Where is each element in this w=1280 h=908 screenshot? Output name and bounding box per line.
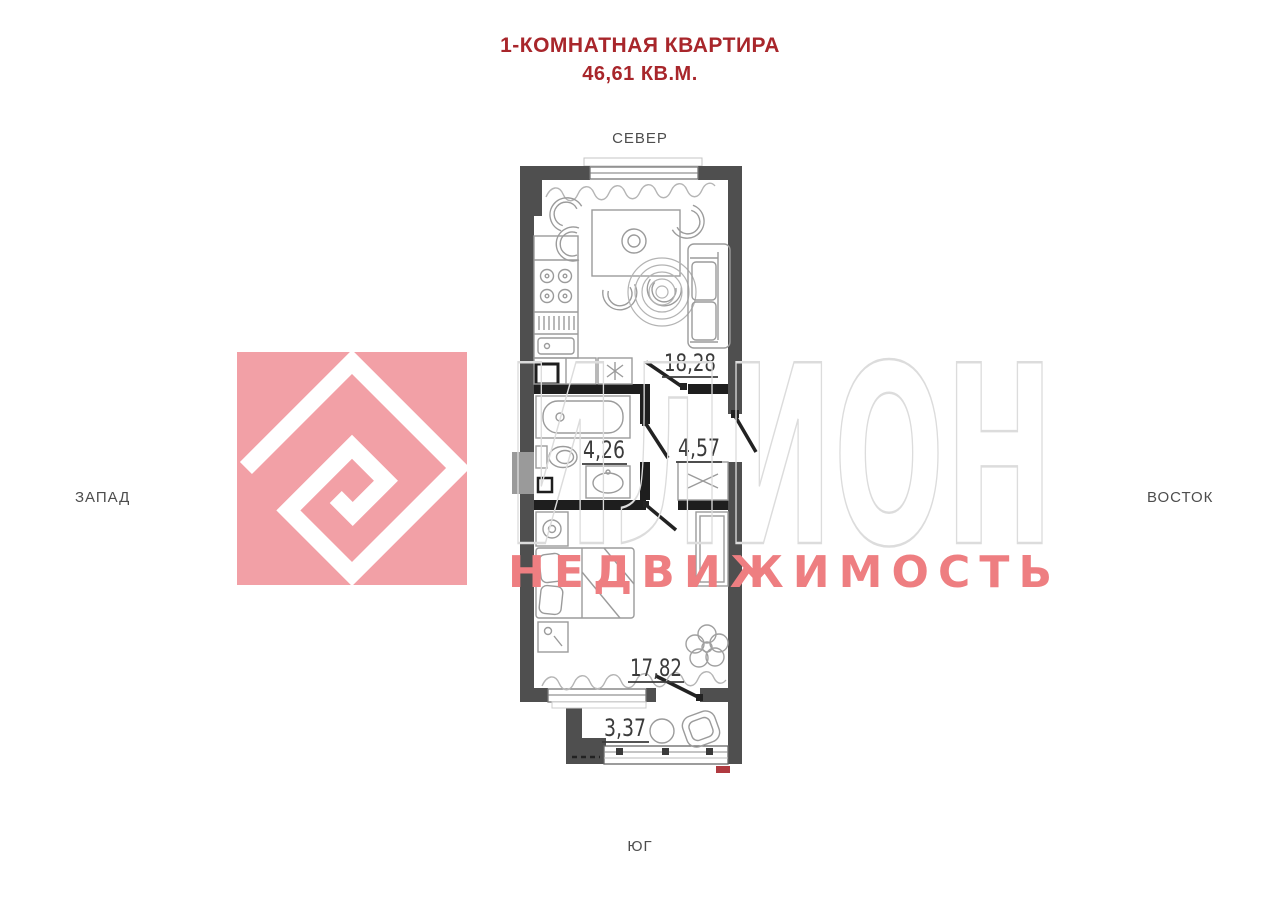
dining-table [592,210,680,276]
sofa [688,244,730,348]
balcony-furniture [650,708,722,750]
diamond-spiral-icon [237,352,467,585]
balcony-armchair [680,708,723,750]
page-title: 1-КОМНАТНАЯ КВАРТИРА 46,61 КВ.М. [0,32,1280,88]
apartment-type-title: 1-КОМНАТНАЯ КВАРТИРА [0,32,1280,60]
dishwasher-hatch [539,316,574,330]
watermark-logo [237,352,467,585]
compass-north-label: СЕВЕР [0,130,1280,147]
living-room-window [590,167,698,179]
compass-south-label: ЮГ [0,838,1280,855]
round-rug [628,258,696,326]
apartment-area-title: 46,61 КВ.М. [0,60,1280,88]
area-label-bedroom: 17,82 [630,654,682,682]
dining-chairs [543,191,711,313]
area-label-balcony: 3,37 [604,714,646,742]
watermark-text-block: ИЛИОН НЕДВИЖИМОСТЬ [495,340,1065,600]
compass-east-label: ВОСТОК [1147,489,1213,506]
bedroom-window [548,689,646,708]
compass-west-label: ЗАПАД [75,489,130,506]
plant-icon [686,625,728,667]
balcony-table [650,719,674,743]
stove-icon [541,270,572,303]
balcony-red-mark [716,766,730,773]
nightstand [538,622,568,652]
